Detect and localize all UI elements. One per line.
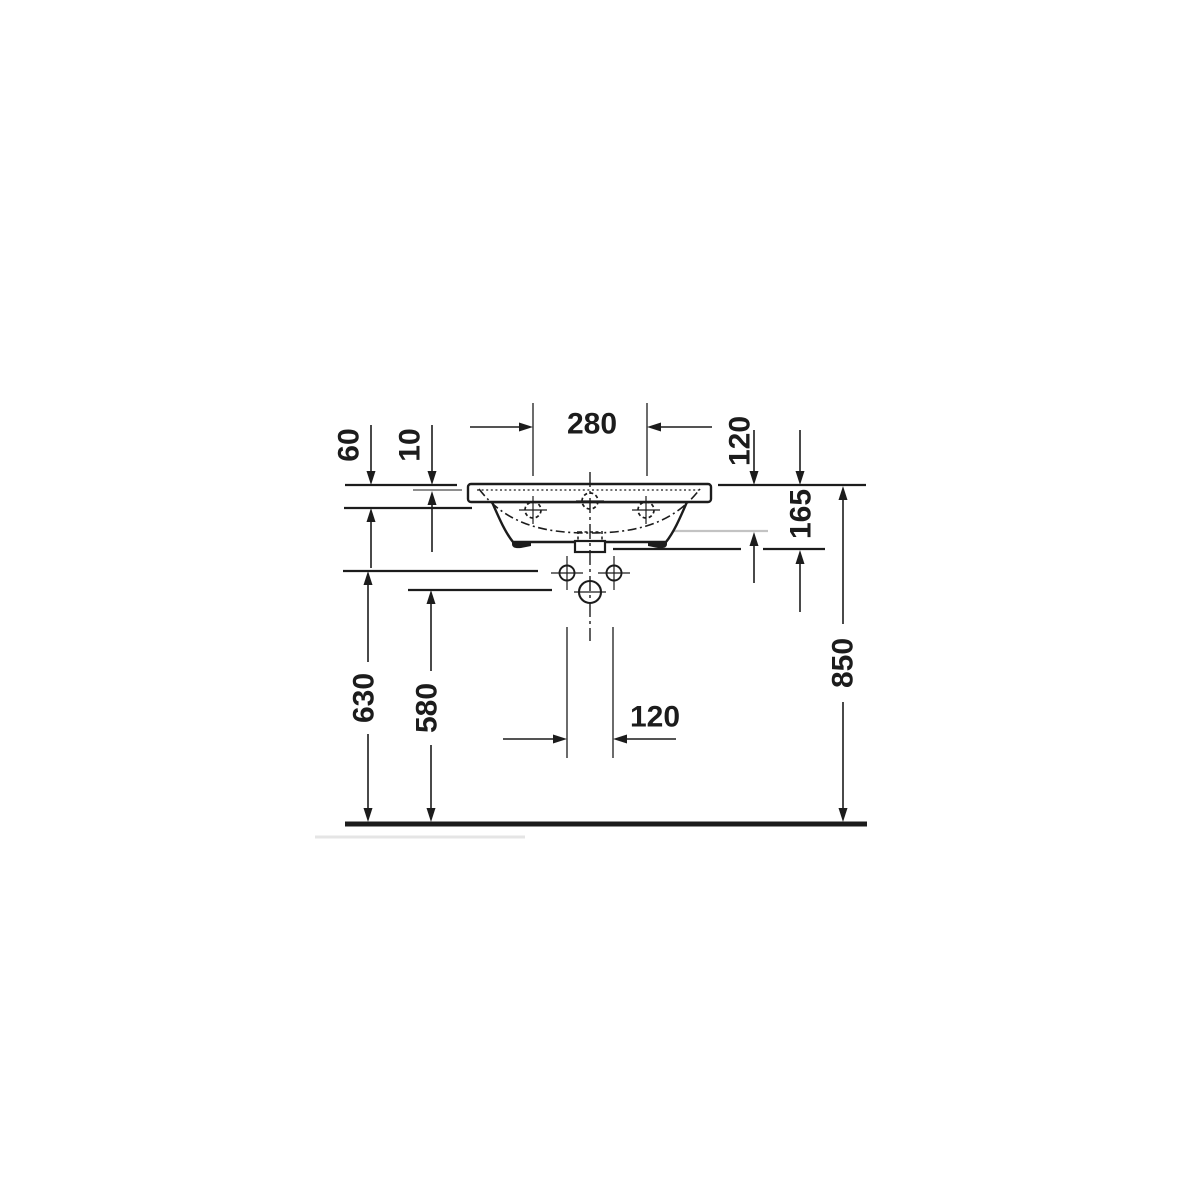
dim-630: 630: [348, 571, 381, 822]
basin-foot-right: [648, 541, 667, 548]
dim-label-580: 580: [411, 683, 444, 733]
dim-label-60: 60: [333, 428, 366, 461]
dim-label-120-top: 120: [724, 416, 757, 466]
dim-120-top: 120: [724, 416, 759, 583]
floor-line: [315, 824, 867, 837]
dim-10: 10: [394, 425, 437, 552]
dim-165: 165: [785, 430, 818, 612]
dim-label-165: 165: [785, 489, 818, 539]
dim-label-10: 10: [394, 428, 427, 461]
dim-label-850: 850: [827, 638, 860, 688]
washbasin-dimension-drawing: 280 60 10 120 165 850: [0, 0, 1200, 1200]
dim-label-630: 630: [348, 673, 381, 723]
dim-label-280: 280: [567, 408, 617, 441]
washbasin-outline: [468, 472, 711, 641]
technical-drawing-canvas: 280 60 10 120 165 850: [0, 0, 1200, 1200]
dim-60: 60: [333, 425, 376, 568]
dim-580: 580: [411, 590, 444, 822]
dim-120-bottom: 120: [503, 627, 680, 758]
dim-850: 850: [827, 486, 860, 822]
dim-label-120-bottom: 120: [630, 701, 680, 734]
dim-280: 280: [470, 403, 712, 476]
basin-foot-left: [512, 541, 531, 548]
